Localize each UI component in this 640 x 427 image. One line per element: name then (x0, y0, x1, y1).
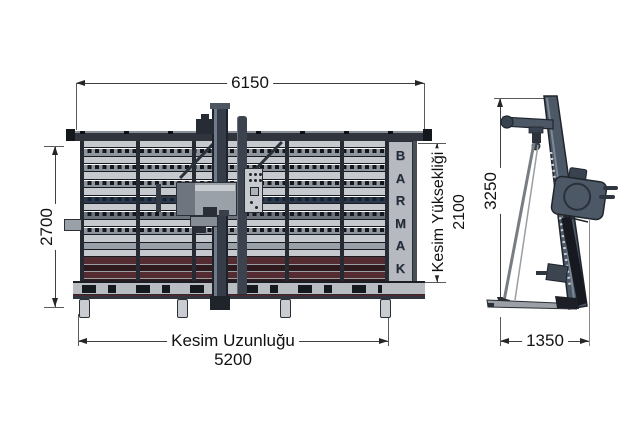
ext-line (44, 307, 64, 308)
motor-box-top (201, 114, 209, 119)
dim-cut-height-label: Kesim Yüksekliği (428, 152, 449, 273)
control-button (249, 179, 252, 182)
brand-letter: M (395, 217, 406, 230)
dim-cut-height: Kesim Yüksekliği 2100 (428, 149, 470, 276)
frame-post (340, 141, 344, 281)
dim-total-height: 2700 (37, 204, 57, 250)
dim-cut-length-value: 5200 (210, 350, 256, 370)
side-arm-pivot (532, 133, 541, 143)
carriage-handle (156, 184, 161, 212)
dim-cut-height-value: 2100 (449, 152, 470, 273)
side-arm-bracket (529, 127, 543, 133)
saw-beam-cap (210, 103, 230, 109)
carriage-top-strip (195, 185, 235, 191)
brand-letter: A (396, 239, 405, 252)
carriage-left-block (177, 183, 195, 215)
saw-carriage (176, 182, 237, 216)
arrowhead (52, 298, 58, 307)
frame-post (136, 141, 140, 281)
control-button (259, 173, 262, 176)
ext-line (76, 83, 77, 130)
carriage-nut (196, 227, 206, 233)
brand-letter: A (396, 172, 405, 185)
frame-post (80, 141, 84, 281)
brand-panel-edge (413, 141, 417, 283)
machine-foot (177, 299, 188, 318)
arrowhead (500, 338, 509, 344)
dim-cut-length-label: Kesim Uzunluğu (167, 331, 299, 351)
control-panel-switch (250, 187, 259, 196)
control-panel (244, 168, 263, 213)
ext-line (44, 146, 64, 147)
side-saw-unit (551, 176, 608, 221)
carriage-detail (203, 207, 217, 215)
carriage-detail-2 (219, 210, 229, 216)
dim-total-width: 6150 (227, 73, 273, 93)
arrowhead (52, 146, 58, 155)
control-button (254, 179, 257, 182)
brand-panel: B A R M A K (388, 141, 413, 283)
brand-letter: K (396, 262, 405, 275)
control-button (255, 206, 258, 209)
side-base-block (555, 296, 579, 309)
machine-foot (280, 299, 291, 318)
frame-post (285, 141, 289, 281)
arrowhead (379, 338, 388, 344)
top-rail-bolts (80, 131, 420, 134)
dim-side-depth: 1350 (522, 331, 568, 351)
arrowhead (415, 80, 424, 86)
machine-foot (380, 299, 391, 318)
control-button (254, 173, 257, 176)
side-arm-roller (501, 116, 513, 128)
side-saw-handle-2 (599, 195, 615, 199)
dim-side-height: 3250 (481, 168, 501, 214)
arrowhead (580, 338, 589, 344)
carriage-handle-link (161, 196, 176, 198)
ext-line (418, 143, 446, 144)
ext-line (78, 314, 79, 346)
top-rail-endcap-left (66, 129, 75, 141)
brand-letter: B (396, 149, 405, 162)
ext-line (500, 317, 501, 346)
carriage-sub-box (190, 216, 218, 227)
side-saw-handle-1 (603, 186, 618, 190)
arrowhead (78, 338, 87, 344)
ext-line (424, 83, 425, 129)
base-clamp-marks (82, 285, 382, 293)
panel-saw-technical-drawing: B A R M A K (0, 0, 640, 427)
base-bottom-rail (73, 295, 425, 299)
left-bracket (64, 219, 82, 231)
control-button (250, 201, 253, 204)
control-button (259, 179, 262, 182)
side-lower-rod (536, 271, 548, 275)
control-button (249, 173, 252, 176)
top-rail-endcap-right (423, 129, 432, 141)
brand-letter: R (396, 194, 405, 207)
side-lower-carriage (546, 264, 568, 283)
saw-beam-foot (210, 296, 230, 310)
arrowhead (76, 80, 85, 86)
machine-foot (79, 299, 90, 318)
side-base-foot (488, 303, 494, 307)
motor-box (196, 119, 214, 134)
